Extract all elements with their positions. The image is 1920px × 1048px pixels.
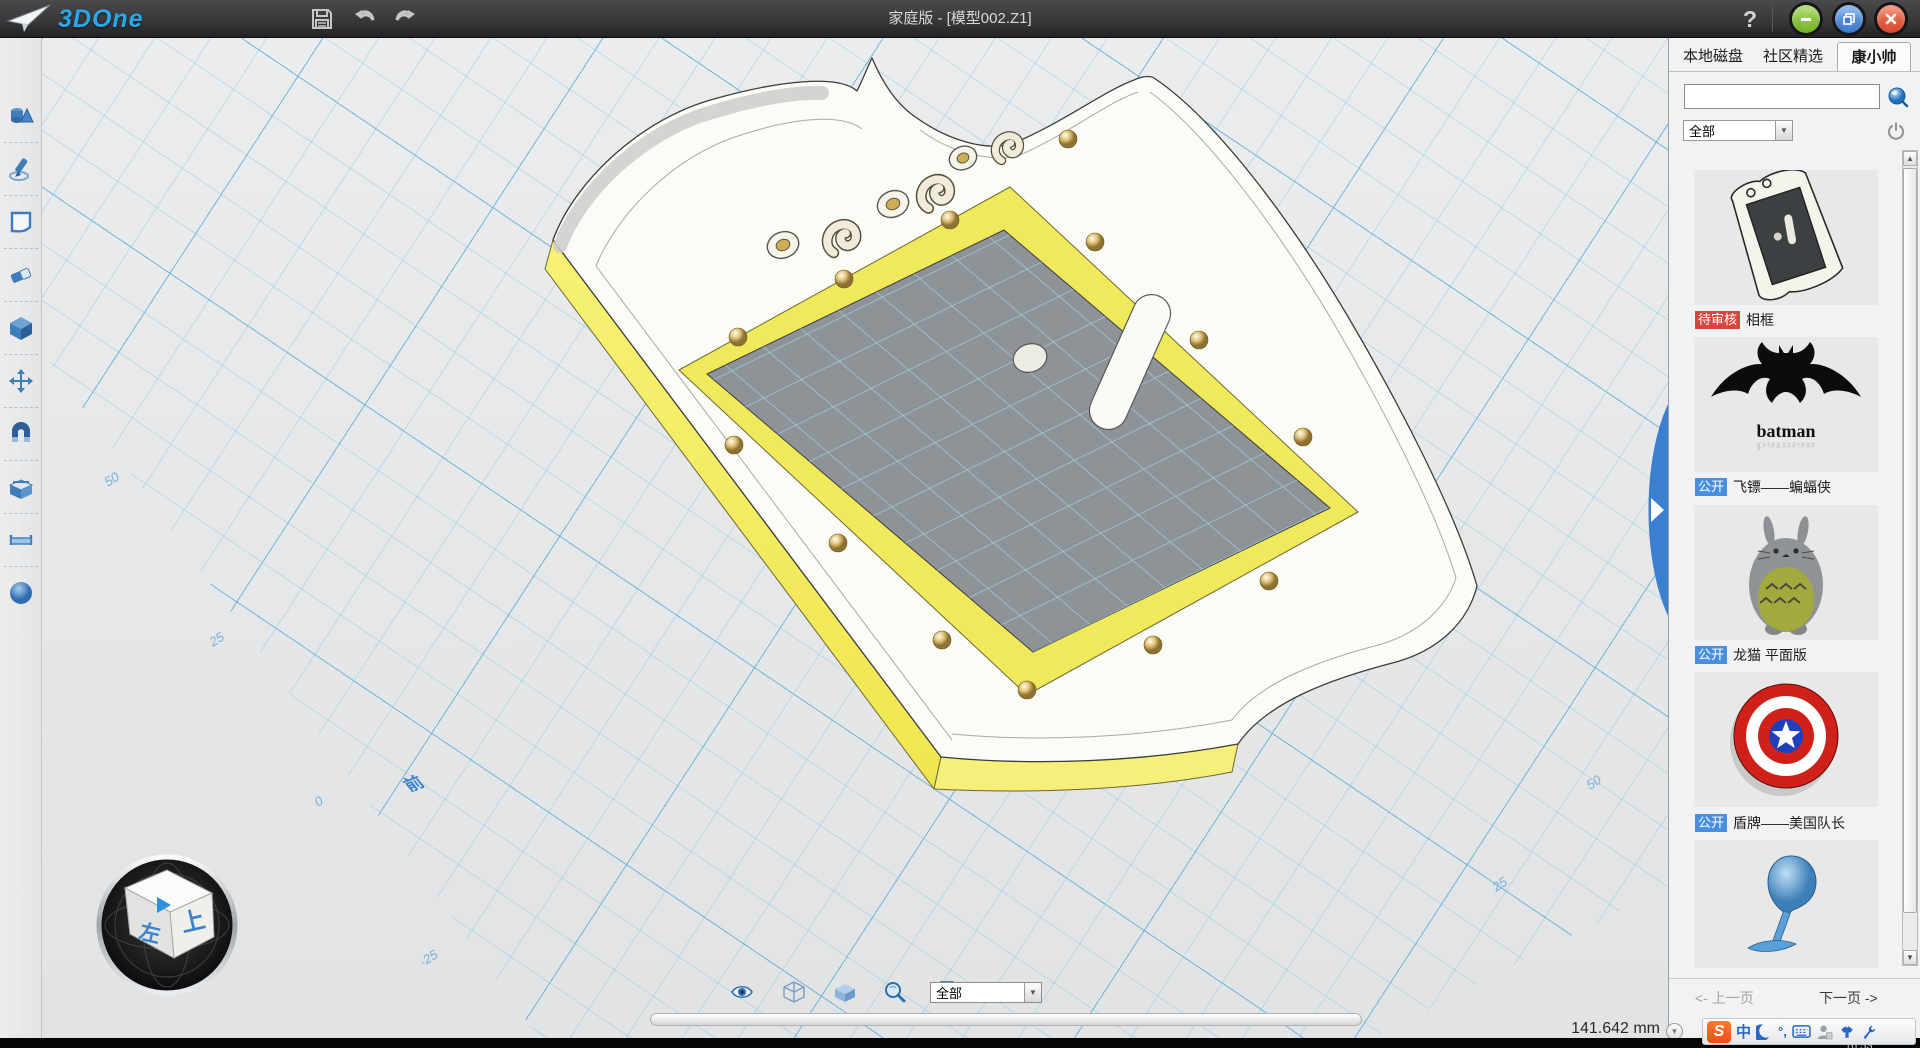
measure-icon[interactable] bbox=[8, 527, 34, 553]
panel-collapse-handle[interactable] bbox=[1638, 400, 1670, 620]
sketch-pen-icon[interactable] bbox=[8, 156, 34, 182]
tool-sidebar bbox=[0, 38, 42, 1038]
model-item-caption: 公开 盾牌——美国队长 bbox=[1695, 814, 1845, 832]
status-badge: 公开 bbox=[1695, 478, 1727, 496]
display-filter-select[interactable]: 全部 ▼ bbox=[930, 982, 1042, 1003]
model-item-label: 飞镖——蝙蝠侠 bbox=[1733, 477, 1831, 497]
wireframe-cube-icon[interactable] bbox=[782, 980, 806, 1004]
sidebar-separator bbox=[4, 513, 38, 514]
list-scrollbar[interactable]: ▲ ▼ bbox=[1902, 150, 1918, 966]
undo-icon[interactable] bbox=[352, 7, 376, 31]
restore-button[interactable] bbox=[1835, 5, 1863, 33]
category-filter-value: 全部 bbox=[1684, 121, 1775, 140]
view-cube-front-label: 前 bbox=[399, 773, 428, 795]
totoro-thumbnail bbox=[1694, 505, 1878, 640]
scrollbar-thumb[interactable] bbox=[1903, 168, 1917, 913]
search-input[interactable] bbox=[1684, 84, 1880, 109]
power-icon[interactable] bbox=[1887, 122, 1905, 140]
tab-user[interactable]: 康小帅 bbox=[1837, 42, 1911, 71]
zoom-icon[interactable] bbox=[883, 980, 907, 1004]
model-item-pin[interactable] bbox=[1694, 840, 1878, 968]
scroll-up-icon[interactable]: ▲ bbox=[1903, 151, 1917, 166]
save-icon[interactable] bbox=[310, 7, 334, 31]
shield-thumbnail bbox=[1694, 672, 1878, 807]
keyboard-icon[interactable] bbox=[1792, 1024, 1811, 1039]
window-title: 家庭版 - [模型002.Z1] bbox=[888, 0, 1031, 38]
solid-cube-icon[interactable] bbox=[8, 315, 34, 341]
taskbar-strip: 16:53 bbox=[0, 1038, 1920, 1048]
minimize-button[interactable] bbox=[1792, 5, 1820, 33]
svg-text:batman: batman bbox=[1756, 421, 1815, 441]
pagination: <- 上一页 下一页 -> bbox=[1669, 978, 1920, 1012]
moon-icon[interactable] bbox=[1756, 1023, 1773, 1040]
person-icon[interactable] bbox=[1816, 1024, 1833, 1040]
library-panel: 本地磁盘 社区精选 康小帅 全部 ▼ 待审核 相框 bbox=[1668, 38, 1920, 1038]
status-badge: 公开 bbox=[1695, 814, 1727, 832]
move-icon[interactable] bbox=[8, 368, 34, 394]
view-cube[interactable]: 前 上 左 bbox=[97, 773, 428, 995]
magnet-snap-icon[interactable] bbox=[8, 421, 34, 447]
batman-thumbnail: batman batman bbox=[1694, 337, 1878, 472]
model-item-caption: 公开 龙猫 平面版 bbox=[1695, 646, 1807, 664]
model-item-label: 相框 bbox=[1746, 310, 1774, 330]
model-canvas: 50 25 0 -25 25 50 bbox=[42, 38, 1668, 1038]
restore-icon bbox=[1842, 12, 1856, 26]
model-item-label: 龙猫 平面版 bbox=[1733, 645, 1807, 665]
model-item-frame[interactable] bbox=[1694, 170, 1878, 305]
svg-text:50: 50 bbox=[101, 469, 122, 490]
prev-page-button[interactable]: <- 上一页 bbox=[1695, 988, 1754, 1008]
svg-text:-25: -25 bbox=[416, 946, 441, 969]
model-item-shield[interactable] bbox=[1694, 672, 1878, 807]
sidebar-separator bbox=[4, 142, 38, 143]
svg-text:50: 50 bbox=[1583, 772, 1604, 793]
titlebar-divider bbox=[1772, 6, 1773, 32]
scroll-down-icon[interactable]: ▼ bbox=[1903, 950, 1917, 965]
paper-plane-icon bbox=[6, 3, 52, 35]
svg-text:0: 0 bbox=[311, 793, 326, 810]
status-badge: 待审核 bbox=[1695, 311, 1740, 329]
ime-toolbar: S 中 °, bbox=[1702, 1018, 1916, 1045]
primitives-icon[interactable] bbox=[8, 103, 34, 129]
close-button[interactable] bbox=[1877, 5, 1905, 33]
model-item-label: 盾牌——美国队长 bbox=[1733, 813, 1845, 833]
minimize-icon bbox=[1799, 12, 1813, 26]
sketch-plane-icon[interactable] bbox=[8, 209, 34, 235]
measurement-readout: 141.642 mm bbox=[1510, 1020, 1660, 1038]
redo-icon[interactable] bbox=[394, 7, 418, 31]
combine-box-icon[interactable] bbox=[8, 474, 34, 500]
sidebar-separator bbox=[4, 354, 38, 355]
sidebar-separator bbox=[4, 195, 38, 196]
frame-thumbnail bbox=[1694, 170, 1878, 305]
pin-thumbnail bbox=[1694, 840, 1878, 968]
svg-text:25: 25 bbox=[206, 629, 228, 650]
sidebar-separator bbox=[4, 301, 38, 302]
sidebar-separator bbox=[4, 460, 38, 461]
skin-icon[interactable] bbox=[1838, 1024, 1856, 1040]
display-filter-value: 全部 bbox=[931, 983, 1024, 1002]
next-page-button[interactable]: 下一页 -> bbox=[1819, 988, 1878, 1008]
chevron-down-icon: ▼ bbox=[1775, 121, 1792, 140]
sogou-logo[interactable]: S bbox=[1707, 1021, 1731, 1043]
close-icon bbox=[1884, 12, 1898, 26]
eye-icon[interactable] bbox=[730, 980, 754, 1004]
frame-model[interactable] bbox=[545, 58, 1477, 791]
chinese-mode-icon[interactable]: 中 bbox=[1736, 1021, 1751, 1042]
sidebar-separator bbox=[4, 566, 38, 567]
eraser-icon[interactable] bbox=[8, 262, 34, 288]
category-filter-select[interactable]: 全部 ▼ bbox=[1683, 120, 1793, 141]
sidebar-separator bbox=[4, 248, 38, 249]
search-icon[interactable] bbox=[1887, 86, 1909, 108]
tab-local-disk[interactable]: 本地磁盘 bbox=[1677, 42, 1749, 71]
model-item-batman[interactable]: batman batman bbox=[1694, 337, 1878, 472]
shaded-cube-icon[interactable] bbox=[833, 980, 857, 1004]
app-logo: 3DOne bbox=[6, 2, 144, 36]
viewport-bottom-bar[interactable] bbox=[650, 1013, 1362, 1026]
svg-text:25: 25 bbox=[1489, 874, 1511, 895]
punctuation-icon[interactable]: °, bbox=[1778, 1024, 1787, 1039]
viewport-3d[interactable]: 50 25 0 -25 25 50 bbox=[42, 38, 1668, 1038]
model-item-caption: 待审核 相框 bbox=[1695, 311, 1774, 329]
chevron-down-icon: ▼ bbox=[1024, 983, 1041, 1002]
sidebar-separator bbox=[4, 407, 38, 408]
model-item-caption: 公开 飞镖——蝙蝠侠 bbox=[1695, 478, 1831, 496]
svg-text:batman: batman bbox=[1757, 440, 1817, 452]
help-button[interactable]: ? bbox=[1736, 4, 1764, 34]
material-sphere-icon[interactable] bbox=[8, 580, 34, 606]
status-badge: 公开 bbox=[1695, 646, 1727, 664]
brand-text: 3DOne bbox=[58, 5, 144, 34]
titlebar: 3DOne 家庭版 - [模型002.Z1] ? bbox=[0, 0, 1920, 38]
model-item-totoro[interactable] bbox=[1694, 505, 1878, 640]
wrench-icon[interactable] bbox=[1861, 1024, 1877, 1040]
tab-community[interactable]: 社区精选 bbox=[1757, 42, 1829, 71]
